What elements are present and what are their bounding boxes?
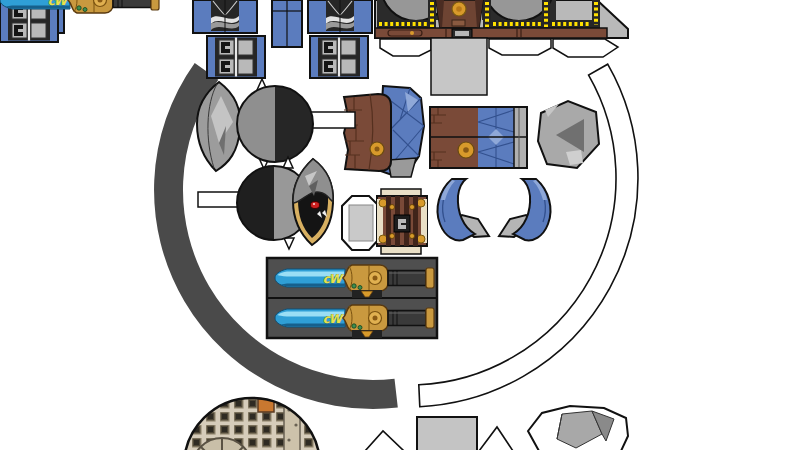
saber-pommel xyxy=(151,0,159,10)
hips-grey-tab xyxy=(388,158,416,177)
sleeve-connector-piece xyxy=(272,0,302,47)
torso-wrap-piece xyxy=(375,0,628,95)
belt-buckle xyxy=(394,215,410,232)
head-gore-face-piece xyxy=(293,159,333,245)
glue-flap xyxy=(553,39,618,57)
papercraft-sheet: cW xyxy=(0,0,800,450)
template-canvas: cW xyxy=(0,0,800,450)
hilt-gem xyxy=(83,8,87,12)
hips-back-piece xyxy=(430,107,527,168)
belt-stud xyxy=(390,205,395,210)
hilt-gem xyxy=(77,6,81,10)
glue-flap xyxy=(489,39,551,55)
torso-centre-tab xyxy=(431,38,487,95)
glue-flap-triangle xyxy=(365,431,404,450)
red-eye xyxy=(311,202,320,209)
base-round-piece xyxy=(184,396,321,450)
belt-stud xyxy=(390,234,395,239)
belt-stud xyxy=(410,234,415,239)
head-sphere-piece-1 xyxy=(237,79,355,169)
glue-flap-triangle xyxy=(479,427,513,450)
glue-tab xyxy=(198,192,240,207)
pipe xyxy=(284,398,300,450)
rock-piece xyxy=(538,101,599,168)
belt-stud xyxy=(410,205,415,210)
base-square-piece xyxy=(417,417,477,450)
glue-tab xyxy=(284,238,294,249)
base-rock-piece xyxy=(528,406,628,450)
hips-robe xyxy=(344,94,391,171)
hips-front-piece xyxy=(344,86,424,177)
shoulder-crescent-piece xyxy=(437,179,489,240)
saber-handle xyxy=(113,0,151,8)
pouch-octagon-piece xyxy=(342,196,379,250)
glue-flap xyxy=(380,39,431,56)
utility-belt-piece xyxy=(377,189,427,254)
